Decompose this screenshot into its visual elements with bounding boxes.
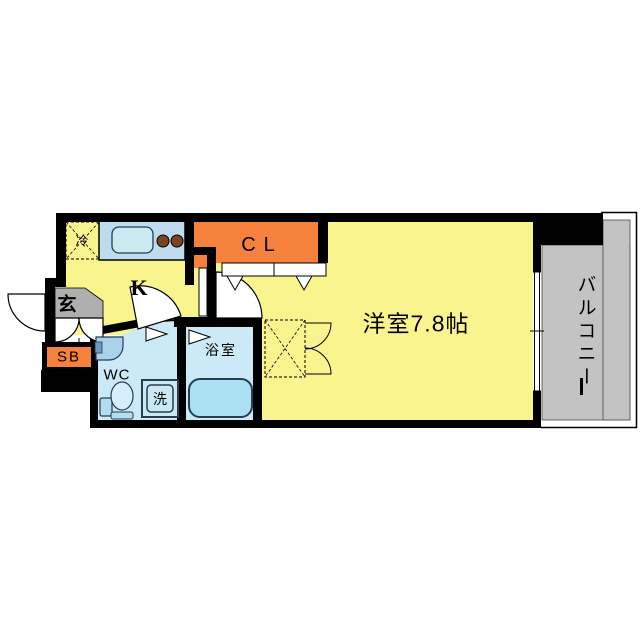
kitchen-counter (99, 221, 185, 260)
label-shoe-box: SB (57, 350, 81, 365)
toilet-bowl (111, 382, 133, 410)
floor-plan-drawing (0, 0, 640, 640)
label-main-room: 洋室7.8帖 (363, 313, 470, 336)
label-refrigerator: 冷 (75, 235, 88, 248)
kitchen-sink (112, 227, 153, 253)
label-toilet-room: WC (104, 368, 131, 383)
label-entrance: 玄 (57, 296, 76, 315)
bathtub (189, 379, 252, 417)
label-washer: 洗 (153, 392, 167, 406)
label-closet: CL (241, 235, 283, 255)
front-door-swing (8, 294, 45, 331)
label-balcony: バルコニー (576, 275, 595, 390)
label-kitchen: K (130, 277, 147, 299)
toilet-tank (100, 398, 112, 416)
label-bathroom: 浴室 (205, 343, 237, 357)
floor-plan-page: 冷 K 玄 SB WC 洗 浴室 CL 洋室7.8帖 バルコニー (0, 0, 640, 640)
